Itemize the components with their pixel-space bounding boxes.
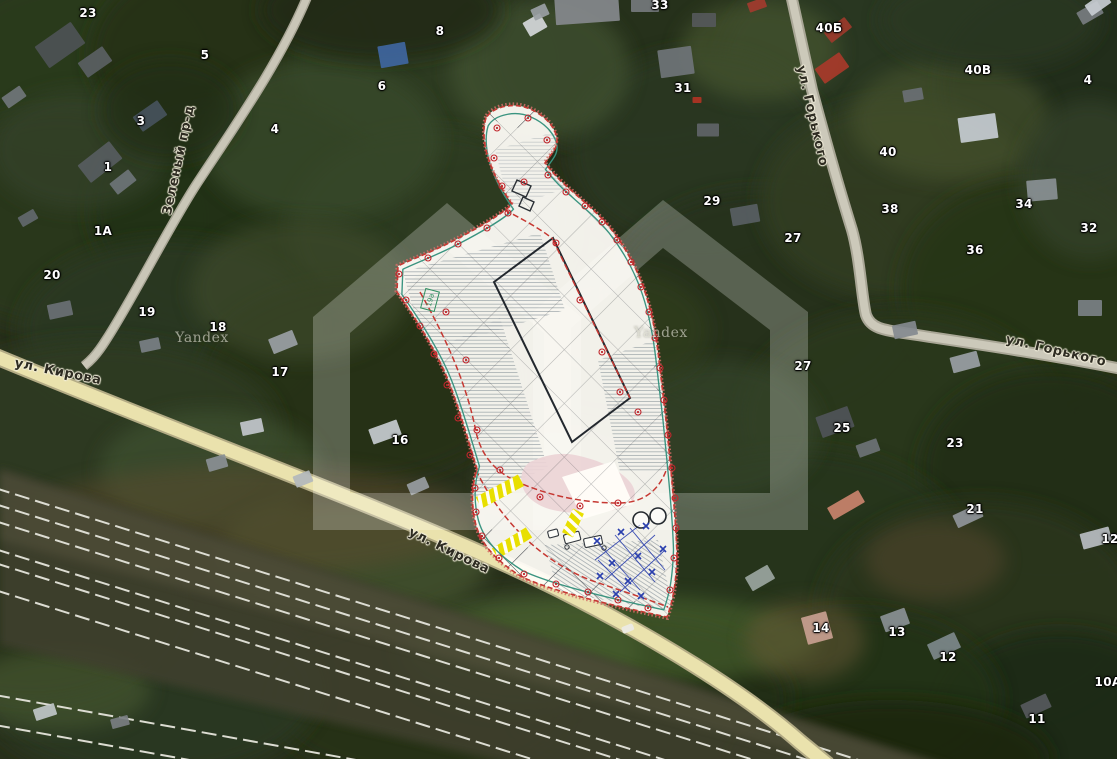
map-labels-layer: 2358336343111А201918171629272725232140Б4…: [0, 0, 1117, 759]
house-number-label: 27: [794, 359, 811, 373]
yandex-watermark: Yandex: [634, 325, 688, 341]
house-number-label: 11: [1028, 712, 1045, 726]
yandex-watermark: Yandex: [175, 330, 229, 346]
house-number-label: 32: [1080, 221, 1097, 235]
house-number-label: 29: [703, 194, 720, 208]
house-number-label: 6: [378, 79, 387, 93]
house-number-label: 17: [271, 365, 288, 379]
house-number-label: 25: [833, 421, 850, 435]
house-number-label: 12: [1101, 532, 1117, 546]
house-number-label: 13: [888, 625, 905, 639]
house-number-label: 40Б: [816, 21, 843, 35]
house-number-label: 19: [138, 305, 155, 319]
house-number-label: 40В: [965, 63, 992, 77]
street-name-label: ул. Кирова: [13, 356, 103, 388]
house-number-label: 4: [1084, 73, 1093, 87]
house-number-label: 40: [879, 145, 896, 159]
house-number-label: 23: [79, 6, 96, 20]
street-name-label: Зеленый пр-д: [160, 104, 198, 217]
house-number-label: 8: [436, 24, 445, 38]
street-name-label: ул. Горького: [1004, 332, 1108, 370]
house-number-label: 38: [881, 202, 898, 216]
house-number-label: 21: [966, 502, 983, 516]
house-number-label: 34: [1015, 197, 1032, 211]
house-number-label: 3: [137, 114, 146, 128]
house-number-label: 33: [651, 0, 668, 12]
house-number-label: 10А: [1095, 675, 1117, 689]
house-number-label: 31: [674, 81, 691, 95]
street-name-label: ул. Кирова: [406, 525, 492, 577]
house-number-label: 36: [966, 243, 983, 257]
house-number-label: 27: [784, 231, 801, 245]
house-number-label: 12: [939, 650, 956, 664]
house-number-label: 14: [812, 621, 829, 635]
house-number-label: 20: [43, 268, 60, 282]
house-number-label: 23: [946, 436, 963, 450]
house-number-label: 16: [391, 433, 408, 447]
house-number-label: 5: [201, 48, 210, 62]
street-name-label: ул. Горького: [793, 64, 831, 168]
house-number-label: 4: [271, 122, 280, 136]
house-number-label: 1А: [94, 224, 112, 238]
satellite-map-view[interactable]: 19а 2358336343111А2019181716292727252321…: [0, 0, 1117, 759]
house-number-label: 1: [104, 160, 113, 174]
